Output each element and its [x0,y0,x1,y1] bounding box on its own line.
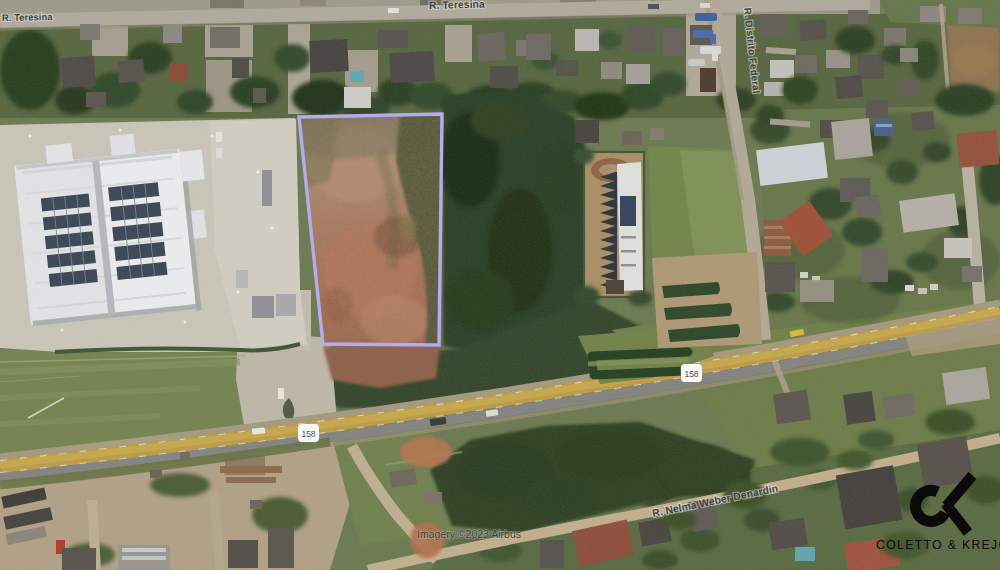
svg-text:COLETTO & KREJCI: COLETTO & KREJCI [876,538,1000,552]
